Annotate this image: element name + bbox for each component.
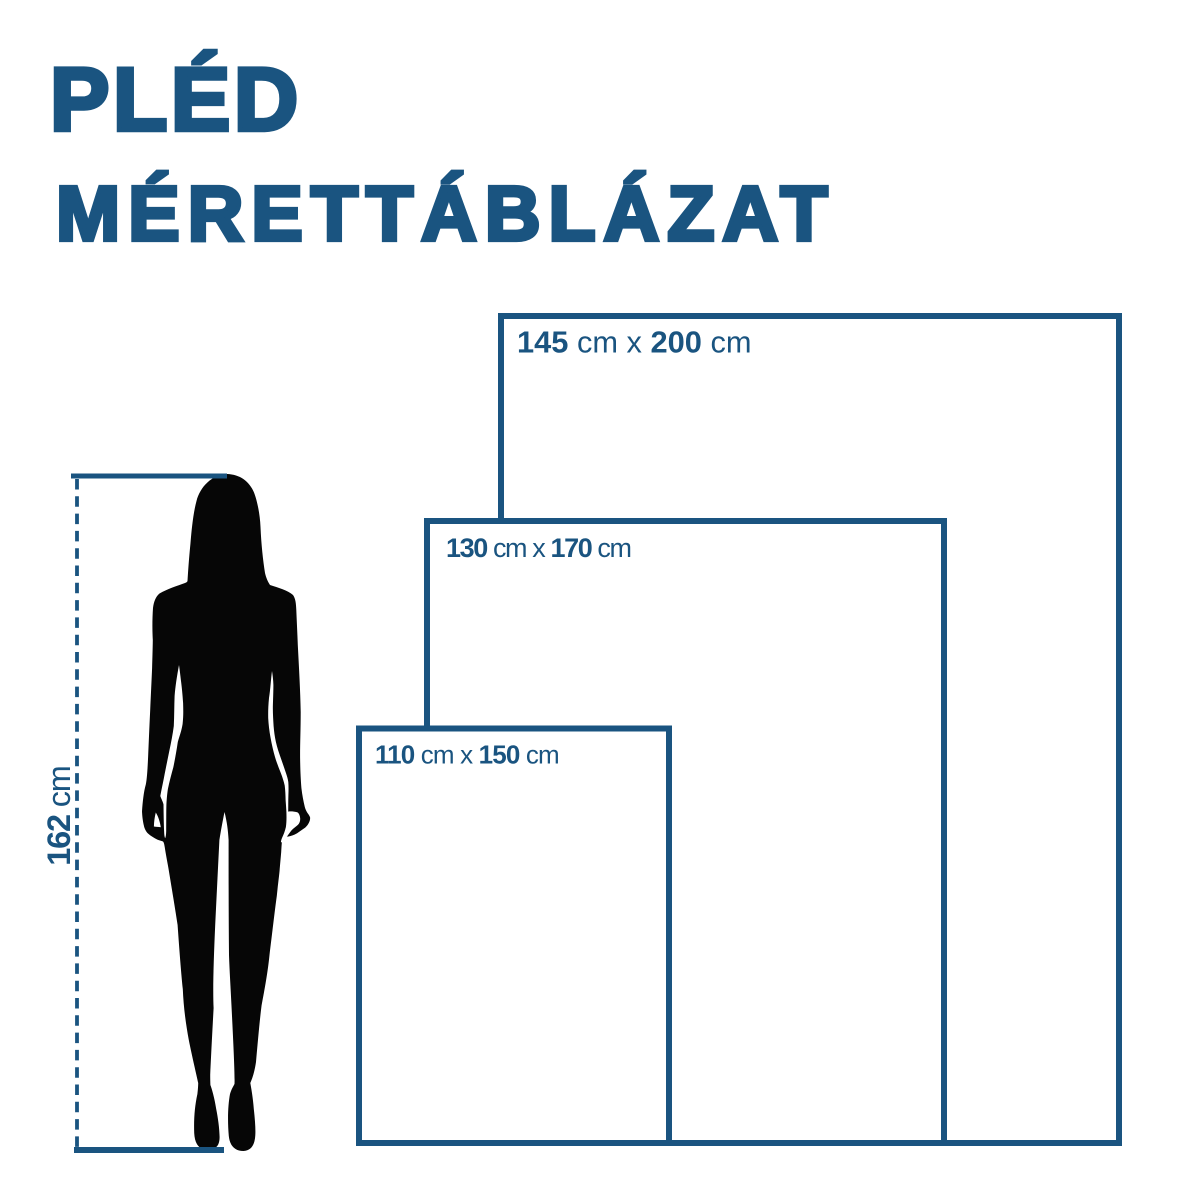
svg-text:PLÉD: PLÉD: [50, 49, 302, 149]
svg-text:130 cm x 170 cm: 130 cm x 170 cm: [446, 533, 631, 563]
svg-text:145 cm x 200 cm: 145 cm x 200 cm: [517, 325, 752, 360]
svg-text:MÉRETTÁBLÁZAT: MÉRETTÁBLÁZAT: [56, 170, 836, 257]
svg-text:162 cm: 162 cm: [41, 766, 77, 865]
svg-text:110 cm x 150 cm: 110 cm x 150 cm: [375, 740, 559, 770]
